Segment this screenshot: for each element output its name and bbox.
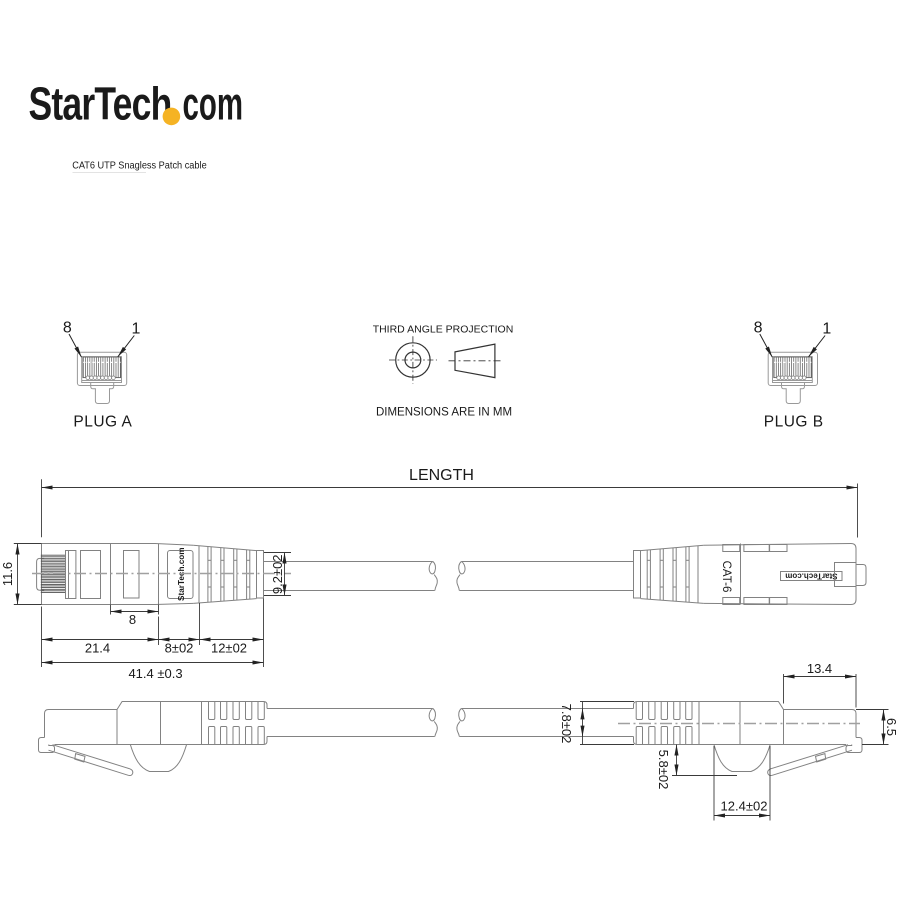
svg-text:7.8±02: 7.8±02: [559, 704, 574, 744]
svg-text:LENGTH: LENGTH: [409, 467, 474, 484]
svg-text:1: 1: [132, 321, 141, 338]
svg-text:StarTech: StarTech: [29, 77, 172, 129]
svg-text:PLUG B: PLUG B: [764, 414, 824, 431]
svg-text:21.4: 21.4: [85, 641, 110, 656]
svg-text:8: 8: [63, 320, 72, 337]
svg-text:8±02: 8±02: [165, 641, 194, 656]
svg-text:11.6: 11.6: [0, 562, 15, 586]
svg-text:DIMENSIONS ARE IN MM: DIMENSIONS ARE IN MM: [376, 406, 512, 418]
svg-text:13.4: 13.4: [807, 661, 832, 676]
svg-text:8: 8: [754, 320, 763, 337]
svg-text:1: 1: [822, 321, 831, 338]
svg-text:com: com: [183, 77, 244, 129]
svg-text:12.4±02: 12.4±02: [721, 799, 768, 814]
svg-text:CAT6 UTP Snagless Patch cable: CAT6 UTP Snagless Patch cable: [72, 160, 207, 171]
svg-text:CAT-6: CAT-6: [720, 561, 732, 593]
svg-text:8: 8: [129, 612, 136, 627]
svg-text:12±02: 12±02: [211, 641, 247, 656]
svg-text:41.4 ±0.3: 41.4 ±0.3: [128, 666, 182, 681]
svg-text:StarTech.com: StarTech.com: [785, 571, 837, 580]
svg-text:9.2±02: 9.2±02: [270, 554, 285, 594]
svg-text:THIRD ANGLE PROJECTION: THIRD ANGLE PROJECTION: [373, 324, 514, 336]
svg-text:PLUG A: PLUG A: [73, 414, 132, 431]
svg-text:5.8±02: 5.8±02: [656, 750, 671, 790]
svg-text:6.5: 6.5: [884, 718, 899, 736]
